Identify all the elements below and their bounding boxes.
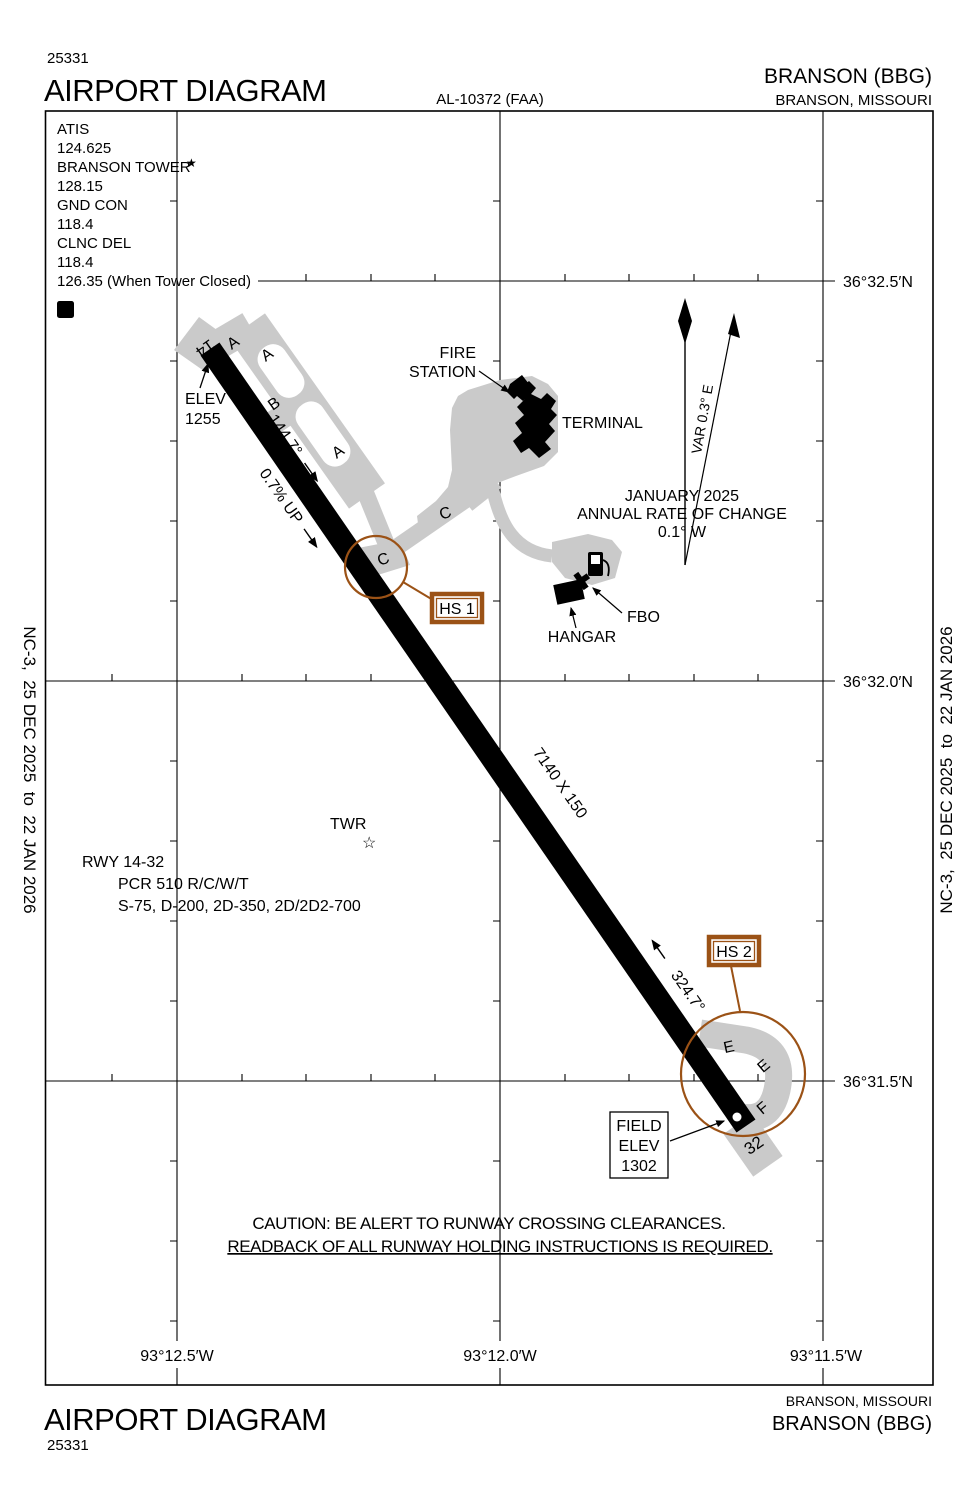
comm-line-atis: ATIS: [57, 121, 89, 138]
tower-label: TWR: [330, 816, 366, 833]
footer-city: BRANSON, MISSOURI: [786, 1393, 932, 1409]
caution-line1: CAUTION: BE ALERT TO RUNWAY CROSSING CLE…: [252, 1214, 725, 1233]
terminal-label: TERMINAL: [562, 415, 643, 432]
latitude-label-2: 36°32.0′N: [843, 674, 913, 691]
field-elev-callout: FIELD ELEV 1302: [610, 1112, 724, 1178]
hotspot-2-leader: [731, 966, 740, 1011]
page-title: AIRPORT DIAGRAM: [44, 73, 326, 108]
comm-line-closed-freq: 126.35 (When Tower Closed): [57, 273, 251, 290]
comm-box: ATIS 124.625 BRANSON TOWER ★ 128.15 GND …: [57, 121, 251, 318]
header-airport-name: BRANSON (BBG): [764, 65, 932, 88]
hotspot-2-label: HS 2: [716, 944, 752, 961]
hotspot-1-label: HS 1: [439, 601, 475, 618]
footer-airport-name: BRANSON (BBG): [772, 1413, 932, 1435]
right-margin-edition-note: NC-3, 25 DEC 2025 to 22 JAN 2026: [937, 626, 956, 913]
longitude-label-3: 93°11.5′W: [790, 1348, 863, 1365]
field-elevation-dot: [733, 1113, 742, 1122]
footer-plate-code: 25331: [47, 1437, 89, 1454]
longitude-label-2: 93°12.0′W: [463, 1348, 537, 1365]
runway-heading-32-arrow: [652, 941, 665, 959]
comm-line-tower-freq: 128.15: [57, 178, 103, 195]
comm-line-gnd: GND CON: [57, 197, 128, 214]
caution-line2: READBACK OF ALL RUNWAY HOLDING INSTRUCTI…: [227, 1237, 772, 1256]
field-elev-line2: ELEV: [619, 1138, 660, 1155]
variation-label: VAR 0.3° E: [688, 383, 716, 455]
airport-diagram-plate: 25331 AIRPORT DIAGRAM AL-10372 (FAA) BRA…: [0, 0, 978, 1500]
field-elev-line1: FIELD: [616, 1118, 661, 1135]
hangar-leader: [571, 608, 576, 628]
variation-epoch: JANUARY 2025: [625, 488, 739, 505]
latitude-label-3: 36°31.5′N: [843, 1074, 913, 1091]
runway-data-line3: S-75, D-200, 2D-350, 2D/2D2-700: [118, 898, 361, 915]
variation-rate-value: 0.1° W: [658, 524, 707, 541]
comm-line-clnc: CLNC DEL: [57, 235, 131, 252]
comm-line-gnd-freq: 118.4: [57, 216, 93, 233]
field-elev-line3: 1302: [621, 1158, 657, 1175]
latitude-label-1: 36°32.5′N: [843, 274, 913, 291]
field-elev-leader: [670, 1121, 724, 1141]
hotspot-1-leader: [403, 582, 433, 600]
fire-station-label-line2: STATION: [409, 364, 476, 381]
longitude-gridlines: [177, 111, 823, 1385]
fire-station-label-line1: FIRE: [440, 345, 476, 362]
variation-rate-label: ANNUAL RATE OF CHANGE: [577, 506, 787, 523]
declared-distances-symbol: D: [61, 303, 70, 318]
magnetic-north-half-arrowhead: [728, 313, 740, 338]
longitude-label-1: 93°12.5′W: [140, 1348, 214, 1365]
fbo-leader: [593, 588, 622, 613]
comm-line-atis-freq: 124.625: [57, 140, 111, 157]
tower-part-time-star-icon: ★: [186, 156, 197, 170]
runway-data-line1: RWY 14-32: [82, 854, 164, 871]
comm-line-clnc-freq: 118.4: [57, 254, 93, 271]
hangar-label: HANGAR: [548, 629, 616, 646]
runway-slope-arrow: [304, 529, 317, 547]
header-city: BRANSON, MISSOURI: [775, 92, 932, 109]
taxilane-to-fbo: [492, 486, 552, 556]
comm-line-tower: BRANSON TOWER: [57, 159, 191, 176]
header-al-number: AL-10372 (FAA): [436, 91, 544, 108]
fbo-label: FBO: [627, 609, 660, 626]
tower-star-icon: ☆: [362, 835, 376, 852]
runway-data-line2: PCR 510 R/C/W/T: [118, 876, 249, 893]
header-plate-code: 25331: [47, 50, 89, 67]
threshold-elev-14-label: ELEV: [185, 391, 226, 408]
true-north-arrowhead: [678, 298, 692, 344]
threshold-elev-14-value: 1255: [185, 411, 221, 428]
left-margin-edition-note: NC-3, 25 DEC 2025 to 22 JAN 2026: [20, 626, 39, 913]
footer-title: AIRPORT DIAGRAM: [44, 1402, 326, 1437]
graticule-lines: [46, 111, 835, 1385]
